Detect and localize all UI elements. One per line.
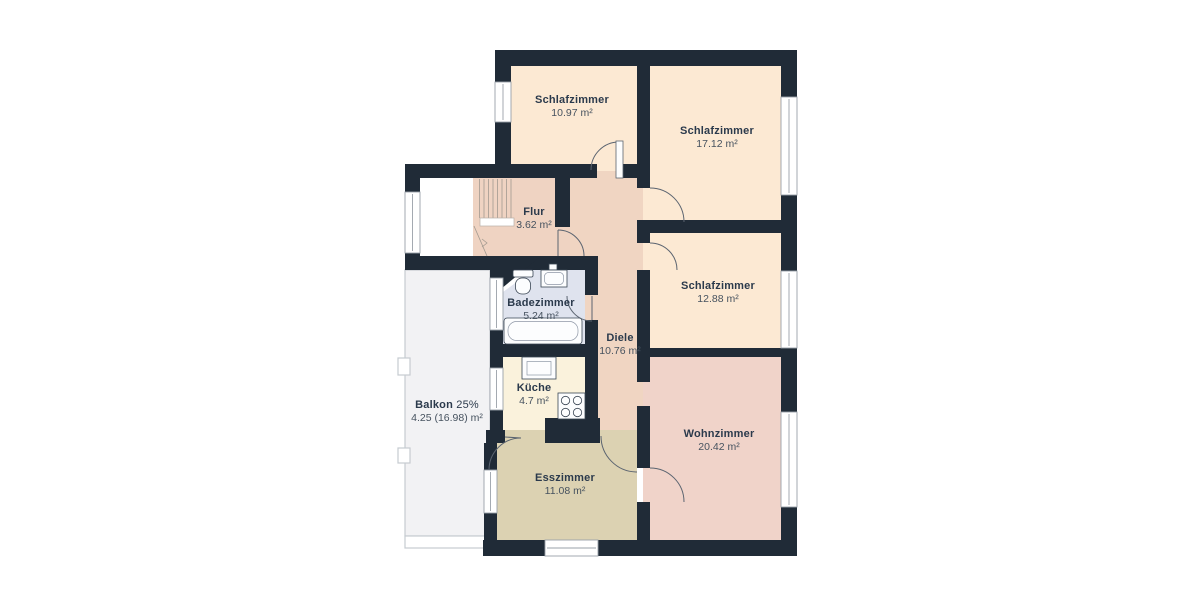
window [545, 540, 598, 556]
window [490, 368, 503, 410]
window [781, 97, 797, 195]
toilet-icon [513, 270, 533, 294]
balcony-door-window [484, 470, 497, 513]
room-floor-esszimmer [497, 430, 637, 548]
stairwell-floor [420, 178, 473, 256]
kitchen-sink-icon [522, 357, 556, 379]
window [490, 278, 503, 330]
bathtub-icon [504, 318, 582, 344]
balcony [398, 270, 490, 548]
room-floor-schlafzimmer-2 [643, 56, 789, 226]
window [495, 82, 511, 122]
window [781, 412, 797, 507]
room-floor-schlafzimmer-3 [643, 226, 789, 354]
floorplan-canvas: Schlafzimmer 10.97 m² Schlafzimmer 17.12… [0, 0, 1200, 600]
stove-icon [558, 393, 585, 419]
room-floor-wohnzimmer [643, 352, 789, 548]
window [405, 192, 420, 253]
window [781, 271, 797, 348]
balcony-rail [405, 536, 490, 548]
balcony-post [398, 448, 410, 463]
balcony-post [398, 358, 410, 375]
floorplan-drawing [0, 0, 1200, 600]
balcony-floor [405, 270, 490, 536]
